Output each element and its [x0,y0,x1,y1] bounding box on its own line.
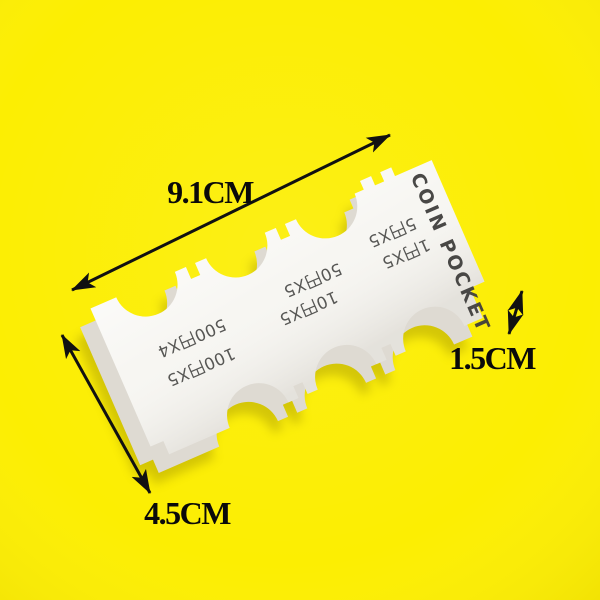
dimension-label-thickness: 1.5CM [449,340,536,376]
product-photo: 500円X4 100円X5 50円X5 10円X5 5円X5 1円X5 COIN… [0,0,600,600]
product-photo-canvas: 500円X4 100円X5 50円X5 10円X5 5円X5 1円X5 COIN… [0,0,600,600]
dimension-label-width: 4.5CM [144,495,231,531]
dimension-label-length: 9.1CM [167,174,254,210]
